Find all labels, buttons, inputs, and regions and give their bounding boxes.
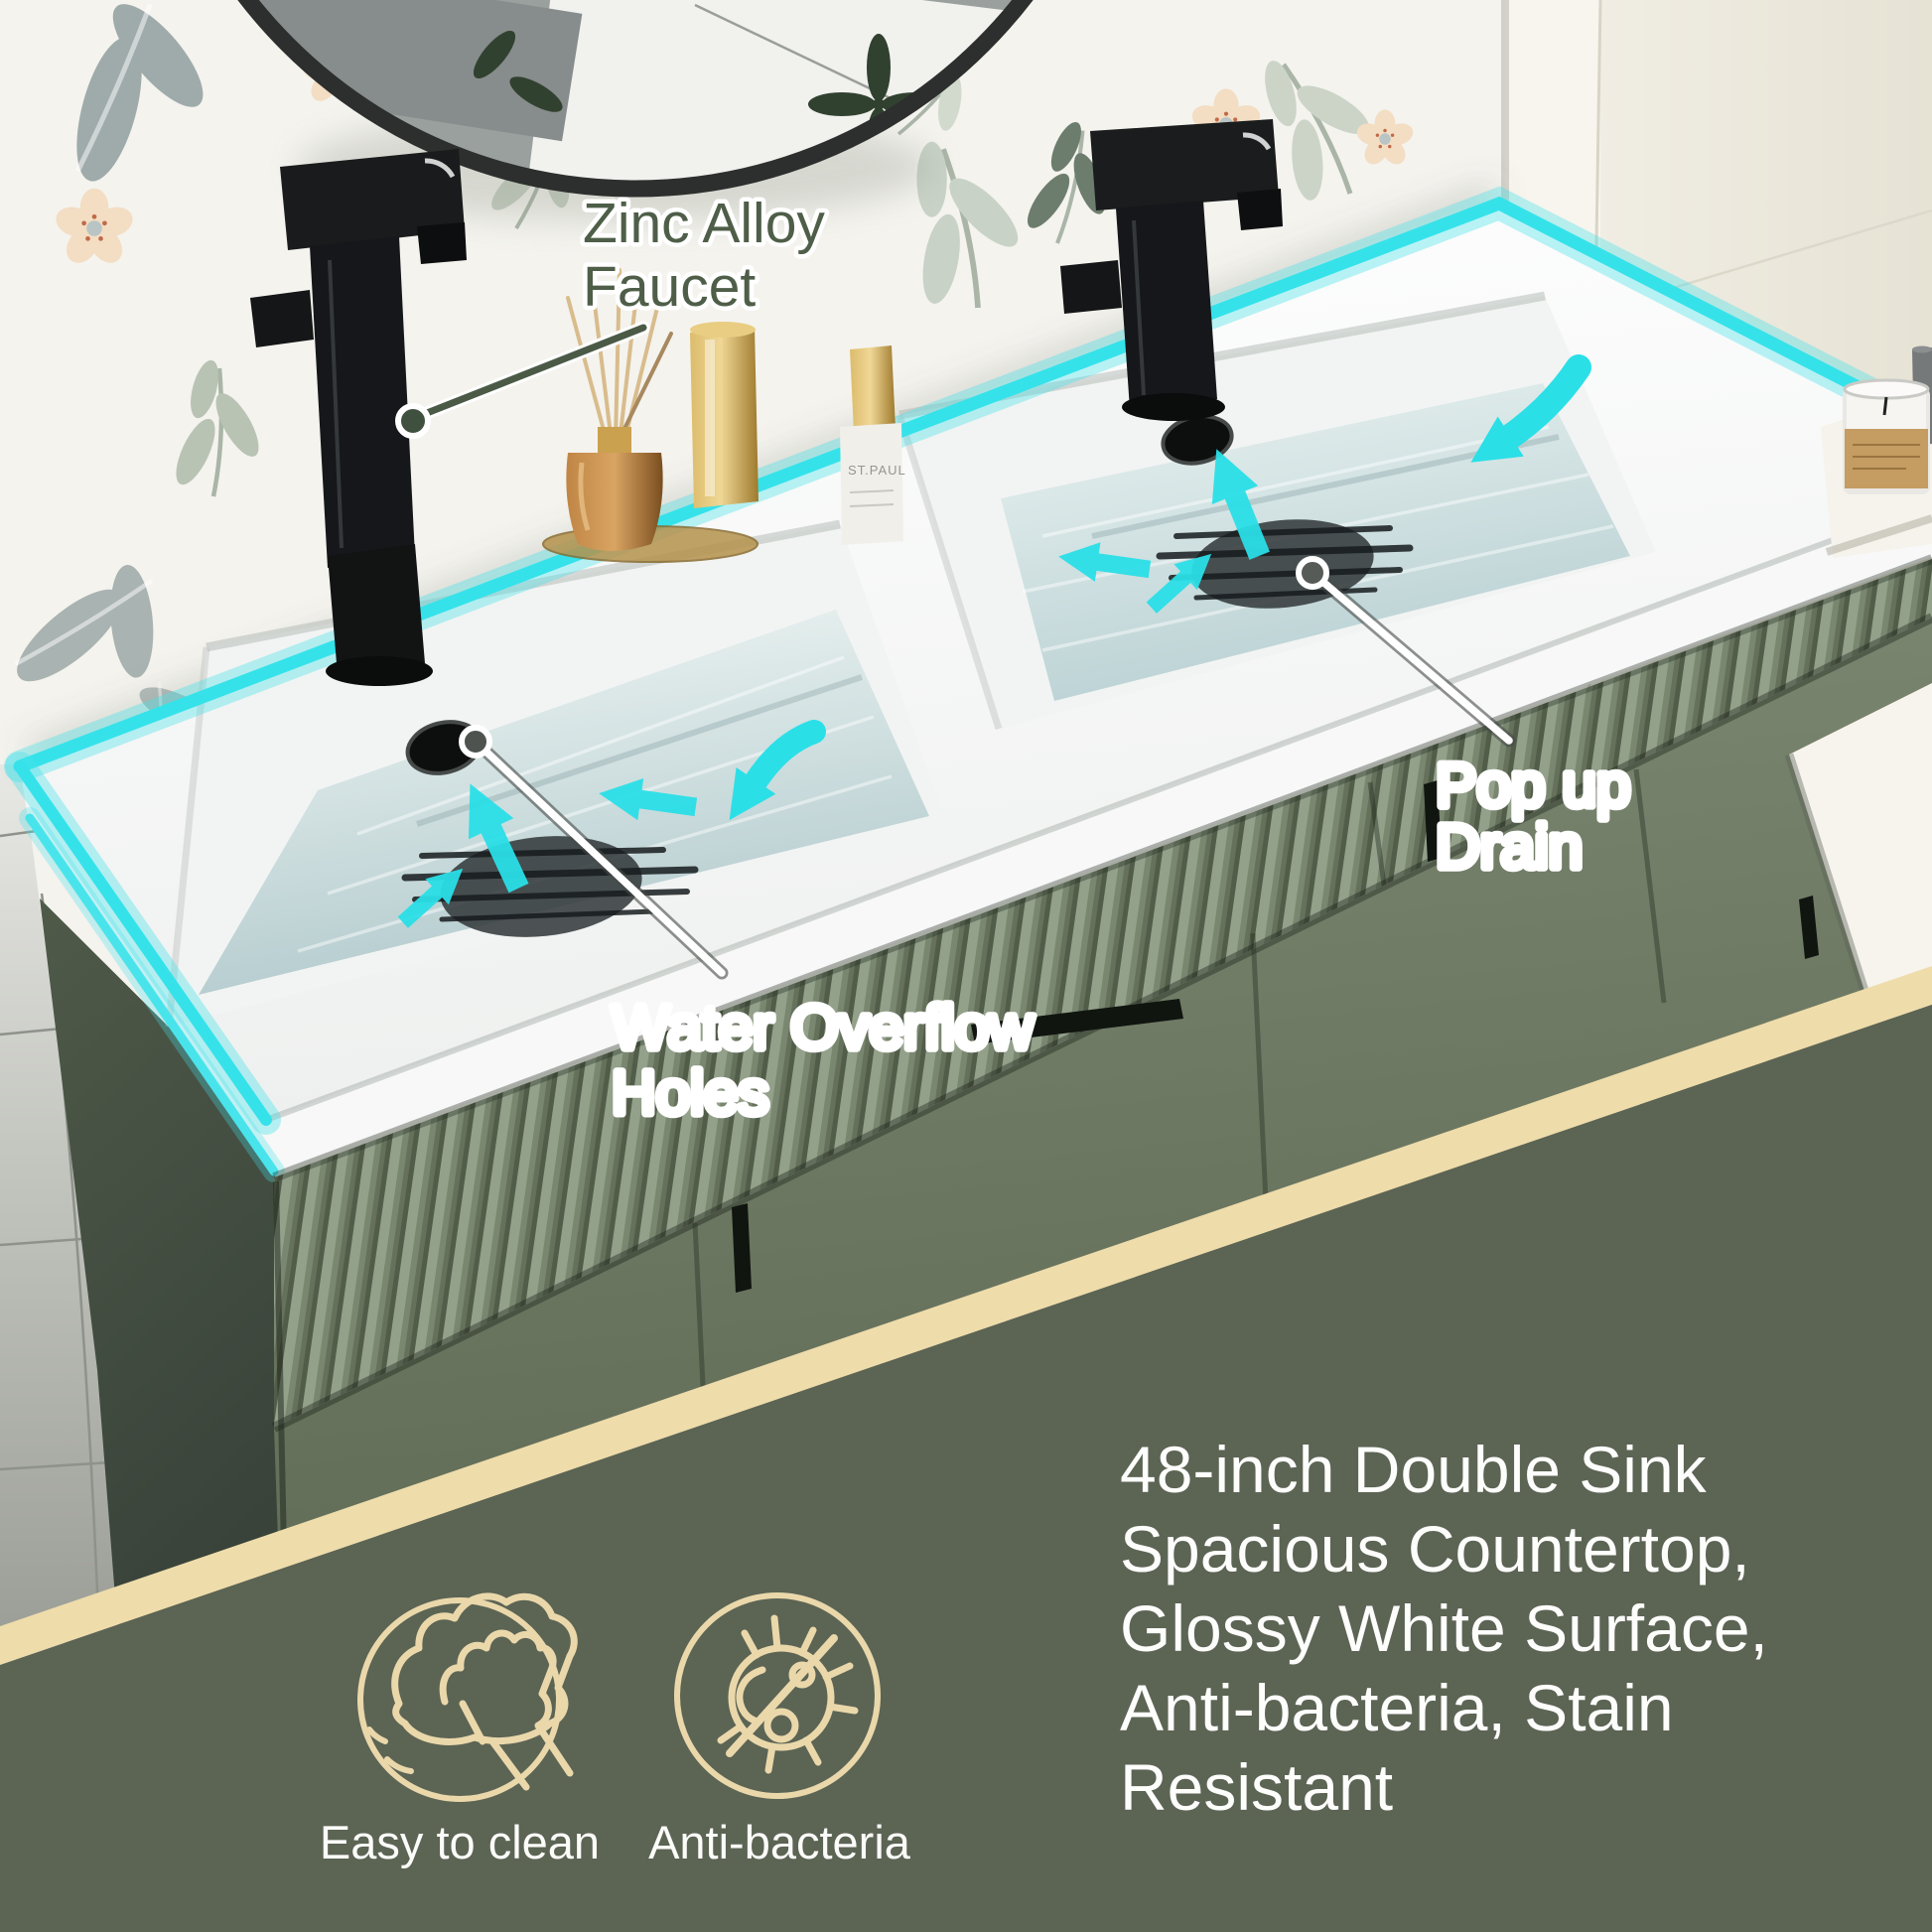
description-line-4: Anti-bacteria, Stain [1120,1671,1674,1744]
callout-drain-line2: Drain [1436,813,1583,882]
callout-dot [462,728,489,756]
description-line-2: Spacious Countertop, [1120,1512,1750,1586]
gold-bottle [690,322,759,508]
product-infographic: ST.PAUL [0,0,1932,1932]
callout-dot [1299,559,1326,587]
glass-candle [1843,380,1930,494]
description-line-1: 48-inch Double Sink [1120,1433,1708,1506]
callout-drain-line1: Pop up [1436,752,1631,820]
callout-faucet-line1: Zinc Alloy [583,192,825,255]
scene-svg: ST.PAUL [0,0,1932,1932]
feature-label-easy-clean: Easy to clean [320,1816,600,1868]
description-line-5: Resistant [1120,1750,1393,1824]
feature-label-anti-bacteria: Anti-bacteria [648,1816,911,1868]
perfume-bottle-label: ST.PAUL [848,463,906,478]
callout-dot [398,406,428,436]
callout-overflow-line2: Holes [612,1059,769,1128]
description-line-3: Glossy White Surface, [1120,1591,1768,1665]
callout-faucet-line2: Faucet [583,255,756,319]
callout-overflow-line1: Water Overflow [612,994,1034,1062]
